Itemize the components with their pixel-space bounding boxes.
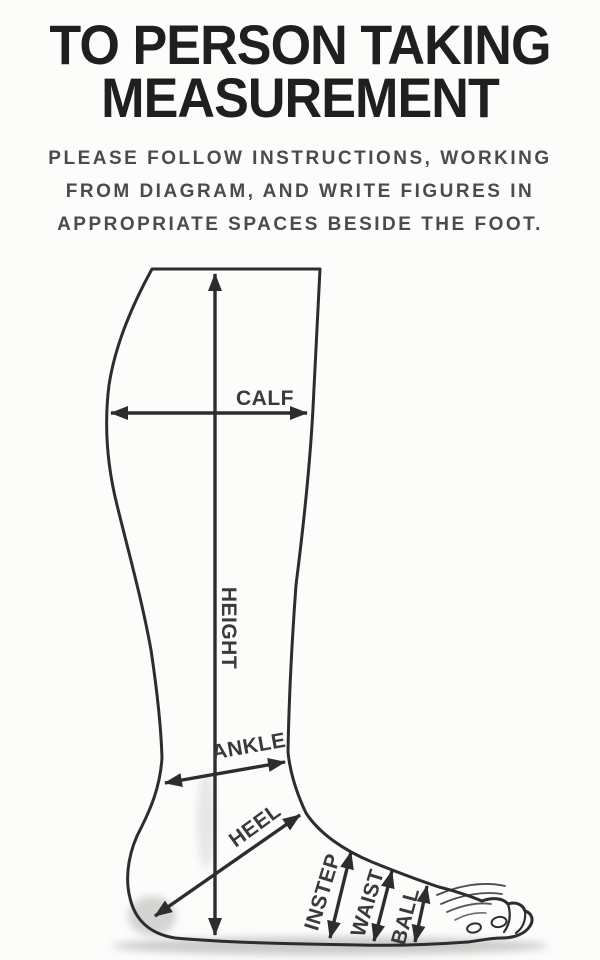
toenail-1 (466, 922, 482, 934)
measurement-labels: CALF HEIGHT ANKLE HEEL INSTEP WAIST BALL (210, 387, 424, 947)
measurement-arrows (111, 274, 427, 942)
foot-wrinkle-4 (455, 913, 486, 920)
ankle-label: ANKLE (210, 729, 288, 765)
instructions-line-1: PLEASE FOLLOW INSTRUCTIONS, WORKING (0, 142, 600, 175)
toe-crease-2 (516, 911, 525, 933)
toenail-2 (491, 916, 508, 928)
instep-label: INSTEP (300, 851, 345, 933)
title-line-1: TO PERSON TAKING (21, 18, 579, 71)
measurement-instruction-page: CALF HEIGHT ANKLE HEEL INSTEP WAIST BALL… (0, 0, 600, 960)
ankle-arrow (165, 762, 285, 783)
header: TO PERSON TAKING MEASUREMENT PLEASE FOLL… (0, 0, 600, 241)
shin-smudge (197, 772, 215, 868)
page-title: TO PERSON TAKING MEASUREMENT (0, 0, 600, 124)
title-line-2: MEASUREMENT (21, 71, 579, 124)
foot-wrinkle-3 (447, 903, 491, 912)
leg-foot-outline (107, 269, 532, 945)
heel-arrow (155, 815, 300, 916)
calf-label: CALF (236, 387, 294, 410)
instructions-line-2: FROM DIAGRAM, AND WRITE FIGURES IN (0, 175, 600, 208)
instructions-line-3: APPROPRIATE SPACES BESIDE THE FOOT. (0, 208, 600, 241)
instructions-text: PLEASE FOLLOW INSTRUCTIONS, WORKING FROM… (0, 142, 600, 241)
height-label: HEIGHT (217, 587, 240, 669)
leg-outline-group (107, 269, 532, 945)
